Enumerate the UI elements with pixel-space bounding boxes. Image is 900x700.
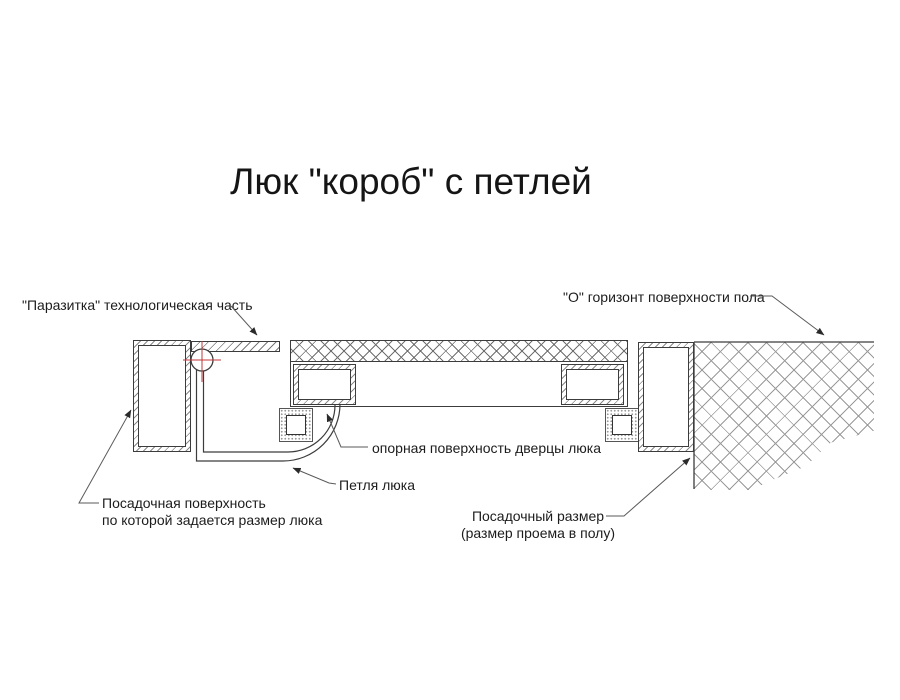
linework-overlay <box>0 0 900 700</box>
hatch-diagram-page: Люк "короб" с петлей <box>0 0 900 700</box>
hinge-center-mark <box>183 341 221 382</box>
hinge-arm <box>197 370 341 461</box>
floor-surface-line <box>694 342 874 489</box>
leader-seating-surface <box>79 410 131 503</box>
leader-hinge <box>293 468 336 484</box>
leader-seating-size <box>606 458 690 516</box>
leader-parasitka <box>231 306 257 335</box>
leader-floor-horizon <box>750 296 824 335</box>
